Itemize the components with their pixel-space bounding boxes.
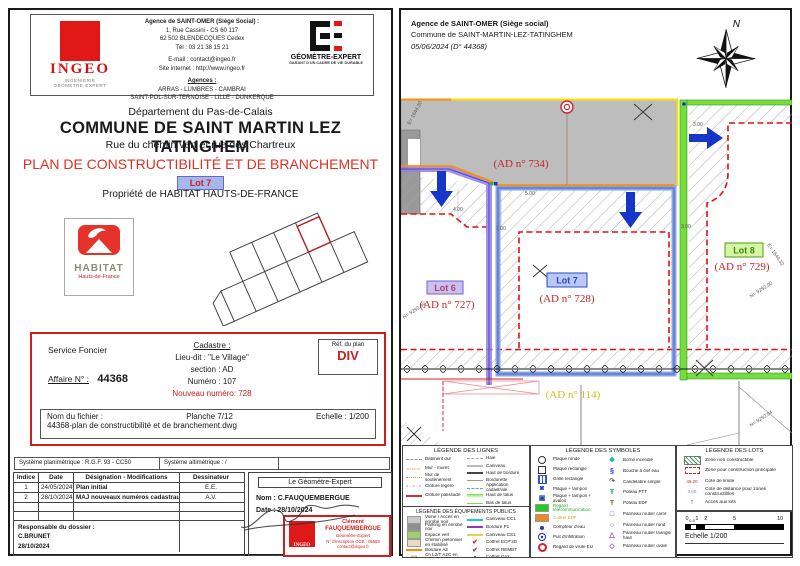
legend-item-label: Plaque + tampon xyxy=(553,487,603,492)
legend-item-label: Ch L2/T A2C en voirie xyxy=(425,553,466,558)
owner-line: Propriété de HABITAT HAUTS-DE-FRANCE xyxy=(10,189,391,200)
legend-item-label: Chemin piétonnier en stabilisé xyxy=(425,538,466,548)
geometre-stamp: INGEO Clément FAUQUEMBERGUE Géomètre-Exp… xyxy=(283,515,391,557)
legend-swatch xyxy=(533,533,551,542)
stamp-ingeo-icon: INGEO xyxy=(289,521,315,547)
legend-item-label: Caniveau xyxy=(486,464,527,469)
grid-coordinate-label: N= 9292.90 xyxy=(749,280,774,299)
legend-item-label: Plaque + tampon + avaloir xyxy=(553,494,603,503)
revision-row: 2 28/10/2024 MAJ nouveaux numéros cadast… xyxy=(14,493,244,503)
service-label: Service Foncier xyxy=(48,345,107,355)
legend-item: Ŧ Poteau EDF xyxy=(603,498,673,509)
file-name-label: Nom du fichier : xyxy=(47,412,103,421)
legend-item-label: Bordure A2 xyxy=(425,548,466,553)
lot6-parcel-label: (AD n° 727) xyxy=(419,299,474,311)
revision-row: 1 24/05/2024 Plan initial E.E. xyxy=(14,483,244,493)
cadastre-numero: Numéro : 107 xyxy=(142,376,282,388)
legend-swatch xyxy=(681,466,703,475)
legend-swatch xyxy=(533,455,551,464)
cadastre-section: section : AD xyxy=(142,364,282,376)
legend-item-label: Mur - muret xyxy=(425,466,466,471)
geometre-expert-logo-name: GÉOMÈTRE-EXPERT xyxy=(283,54,369,61)
legend-swatch xyxy=(533,504,551,513)
file-name-value: 44368-plan de constructibilité et de bra… xyxy=(47,421,369,430)
parcel-114-label: (AD n° 114) xyxy=(546,389,601,401)
legend-item-label: Haut de bordure xyxy=(486,471,527,476)
lot-badge: Lot 7 xyxy=(177,176,225,190)
legend-item: Compteur d'eau xyxy=(533,523,603,533)
lot8-badge-label: Lot 8 xyxy=(733,246,755,256)
legend-item-label: Parking en enrobé noir xyxy=(425,523,466,533)
geometre-expert-logo: GÉOMÈTRE-EXPERT GARANT D'UN CADRE DE VIE… xyxy=(283,21,369,65)
ingeo-logo-name: INGEO xyxy=(41,61,119,78)
legend-item: Mur de soutènement xyxy=(405,473,466,482)
agency-line: ARRAS - LUMBRES - CAMBRAI xyxy=(123,86,281,95)
legend-item: △ Panneau routier triangle haut xyxy=(603,531,673,542)
legend-swatch: □ xyxy=(603,510,621,519)
legend-swatch xyxy=(533,475,551,484)
revision-row-empty xyxy=(14,512,244,521)
coordinate-systems-row: Système planimétrique : R.G.F. 93 - CC50… xyxy=(14,457,390,470)
legend-swatch: △ xyxy=(603,531,621,540)
dimension-label: 5.00 xyxy=(525,191,535,197)
habitat-logo-sub: Hauts-de-France xyxy=(65,274,133,280)
legend-item-label: Poteau EDF xyxy=(623,501,673,506)
legend-swatch xyxy=(405,473,423,482)
lot7-parcel-label: (AD n° 728) xyxy=(539,293,594,305)
responsable-label: Responsable du dossier : xyxy=(18,523,175,532)
cadastral-cross xyxy=(533,265,547,277)
legend-item-label: Caniveau CC1 xyxy=(486,517,527,522)
plan-sheet-page: Agence de SAINT-OMER (Siège social) Comm… xyxy=(399,8,792,556)
grid-coordinate-label: N= 9292.94 xyxy=(749,409,774,428)
ingeo-logo: INGEO INGENIERIE GEOMETRE-EXPERT xyxy=(41,21,119,89)
geometre-expert-logo-icon xyxy=(306,21,346,51)
affaire-label: Affaire N° : xyxy=(48,374,89,384)
legend-item-label: Zone pour construction principale xyxy=(705,468,792,473)
legend-item: □ Panneau routier carré xyxy=(603,509,673,520)
legend-item-label: Poteau PTT xyxy=(623,490,673,495)
legend-item-label: Mur de soutènement xyxy=(425,473,466,483)
legend-item-label: Grille rectangle xyxy=(553,477,603,482)
utility-marker-green xyxy=(490,182,494,186)
legend-swatch: 3.00 xyxy=(681,487,703,496)
plan-header-commune: Commune de SAINT-MARTIN-LEZ-TATINGHEM xyxy=(411,29,573,40)
legend-item: ▣ Plaque + tampon + avaloir xyxy=(533,494,603,504)
cadastre-title: Cadastre : xyxy=(142,340,282,352)
legend-symbols-title: LÉGENDE DES SYMBOLES xyxy=(531,446,675,455)
legend-swatch xyxy=(533,465,551,474)
geometre-date: Date : 28/10/2024 xyxy=(256,507,312,514)
legend-swatch xyxy=(533,523,551,532)
legend-item: Regard de visite EU xyxy=(533,542,603,552)
legend-item: Zone non constructible xyxy=(677,455,792,466)
responsable-date: 28/10/2024 xyxy=(18,542,175,551)
plan-ref-value: DIV xyxy=(319,348,377,363)
legend-item-label: Panneau routier rond xyxy=(623,523,673,528)
commune-title: COMMUNE DE SAINT MARTIN LEZ TATINGHEM xyxy=(10,119,391,157)
dimension-label: 4.00 xyxy=(453,207,463,213)
scale-numbers: 0 0.5 1 2 5 10 xyxy=(685,516,784,524)
legend-item: ▭ Ch L2/T A2C en voirie xyxy=(405,554,466,558)
utility-marker-dot xyxy=(682,102,686,106)
plan-ref-box: Réf. du plan DIV xyxy=(318,339,378,375)
habitat-logo: HABITAT Hauts-de-France xyxy=(64,218,134,296)
scale-value: Echelle : 1/200 xyxy=(316,412,369,421)
legend-lines-box: LÉGENDE DES LIGNES Bâtiment dur ▭▭▭ Mur … xyxy=(402,445,530,507)
agency-line: Agences : xyxy=(123,77,281,86)
revision-table: Indice Date Désignation - Modifications … xyxy=(13,472,245,556)
stamp-last-name: FAUQUEMBERGUE xyxy=(317,526,389,534)
legend-item-label: Borne incendie xyxy=(623,458,673,463)
affaire-value: 44368 xyxy=(97,373,128,385)
site-plan: (AD n° 734) Lot 6 (AD n° 727) Lot 7 (AD … xyxy=(401,97,792,445)
legend-item-label: Panneau routier carré xyxy=(623,512,673,517)
legend-swatch: ▪ xyxy=(466,553,484,558)
legend-item-label: Coffret REMBT xyxy=(486,548,527,553)
legend-item: 3.00 Cote de distance pour zones constru… xyxy=(677,487,792,498)
legend-swatch xyxy=(533,543,551,552)
legend-item: ↑ Accès aux lots xyxy=(677,497,792,508)
letterhead: INGEO INGENIERIE GEOMETRE-EXPERT Agence … xyxy=(30,14,374,96)
legend-item: ↷ Candélabre simple xyxy=(603,477,673,488)
legend-item: ◙ Plaque + tampon xyxy=(533,484,603,494)
utility-marker-blue xyxy=(494,182,498,186)
legend-item: Coffret EDF xyxy=(533,513,603,523)
agency-line: Agence de SAINT-OMER (Siège Social) : xyxy=(123,18,281,27)
cadastre-block: Cadastre : Lieu-dit : "Le Village" secti… xyxy=(142,340,282,400)
dimension-label: 3.00 xyxy=(693,122,703,128)
legend-item: Plaque rectangle xyxy=(533,465,603,475)
legend-item: ○ Panneau routier rond xyxy=(603,520,673,531)
legend-item: ◇ Panneau routier ovale xyxy=(603,541,673,552)
legend-item-label: Puit d'infiltration xyxy=(553,535,603,540)
legend-item-label: Panneau routier ovale xyxy=(623,544,673,549)
legend-item: ▭▭▭ Mur - muret xyxy=(405,464,466,473)
legend-swatch: ◙ xyxy=(533,484,551,493)
parcel-114-details xyxy=(443,381,792,445)
dimension-label: 3.00 xyxy=(681,224,691,230)
compass-north-label: N xyxy=(733,19,741,30)
legend-item: Bâtiment dur xyxy=(405,455,466,464)
legend-item-label: Coffret ECP'2D xyxy=(486,540,527,545)
legend-swatch: 45.20 xyxy=(681,477,703,486)
legend-item: ×-×-× Clôture légère xyxy=(405,482,466,491)
legend-item-label: Cote de limite xyxy=(705,479,792,484)
legend-swatch: § xyxy=(603,467,621,476)
scale-label: Echelle 1/200 xyxy=(685,533,784,540)
legend-item-label: Bouche à clef eau xyxy=(623,469,673,474)
agency-line: SAINT-POL-SUR-TERNOISE - LILLE - DUNKERQ… xyxy=(123,94,281,103)
legend-swatch xyxy=(533,513,551,522)
agency-line: Tél : 03 21 38 15 21 xyxy=(123,44,281,53)
fence-x-marks xyxy=(401,365,792,373)
legend-item-label: Coffret Gaz xyxy=(486,555,527,558)
legend-item-label: Candélabre simple xyxy=(623,480,673,485)
cadastre-lieu-dit: Lieu-dit : "Le Village" xyxy=(142,352,282,364)
plan-title: PLAN DE CONSTRUCTIBILITÉ ET DE BRANCHEME… xyxy=(10,156,391,172)
legend-item: Clôture palissade xyxy=(405,491,466,500)
legend-item-label: Zone non constructible xyxy=(705,458,792,463)
legend-item-label: Panneau routier triangle haut xyxy=(623,531,673,540)
legend-item-label: Clôture légère xyxy=(425,484,466,489)
agency-line: 62 502 BLENDECQUES Cedex xyxy=(123,35,281,44)
legend-item-label: Bas de talus xyxy=(486,501,527,506)
department-title: Département du Pas-de-Calais xyxy=(10,106,391,118)
geometre-expert-logo-tagline: GARANT D'UN CADRE DE VIE DURABLE xyxy=(283,61,369,65)
legend-item-label: Regard télécommunication xyxy=(553,504,603,513)
agency-website: Site internet : http://www.ingeo.fr xyxy=(123,65,281,74)
legend-item: § Bouche à clef eau xyxy=(603,466,673,477)
file-info-box: Nom du fichier : Planche 7/12 Echelle : … xyxy=(40,409,376,439)
legend-item-label: Coffret EDF xyxy=(553,516,603,521)
legend-item: Regard télécommunication xyxy=(533,503,603,513)
legend-swatch: Ŧ xyxy=(603,488,621,497)
grid-coordinate-label: N= 9292.99 xyxy=(402,301,427,320)
legend-strip: LÉGENDE DES LIGNES Bâtiment dur ▭▭▭ Mur … xyxy=(402,445,793,558)
compass-rose: N xyxy=(690,18,762,90)
planimetric-system: Système planimétrique : R.G.F. 93 - CC50 xyxy=(15,458,160,469)
revision-header-row: Indice Date Désignation - Modifications … xyxy=(14,473,244,483)
revision-row-empty xyxy=(14,503,244,512)
legend-symbols-box: LÉGENDE DES SYMBOLES Plaque ronde Plaque… xyxy=(530,445,676,558)
legend-item: Plaque ronde xyxy=(533,455,603,465)
legend-item: ▪ Coffret Gaz xyxy=(466,554,527,558)
legend-item: Ŧ Poteau PTT xyxy=(603,487,673,498)
cadastre-nouveau-numero: Nouveau numéro: 728 xyxy=(142,388,282,400)
legend-swatch: ❖ xyxy=(603,456,621,465)
legend-swatch: ▣ xyxy=(533,494,551,503)
stamp-first-name: Clément xyxy=(317,519,389,526)
lot6-badge-label: Lot 6 xyxy=(434,283,456,293)
legend-swatch xyxy=(405,455,423,464)
ingeo-logo-sub2: GEOMETRE-EXPERT xyxy=(41,83,119,89)
legend-swatch xyxy=(681,456,703,465)
lot7-badge-label: Lot 7 xyxy=(556,276,578,286)
legend-item-label: Compteur d'eau xyxy=(553,525,603,530)
legend-item-label: Cote de distance pour zones constructibl… xyxy=(705,487,792,497)
legend-swatch: Ŧ xyxy=(603,499,621,508)
agency-email: E-mail : contact@ingeo.fr xyxy=(123,56,281,65)
legend-swatch: ↷ xyxy=(603,477,621,486)
lot8-parcel-label: (AD n° 729) xyxy=(714,261,769,273)
legend-item-label: Haie xyxy=(486,456,527,461)
legend-item: Grille rectangle xyxy=(533,474,603,484)
geometre-name: Nom : C.FAUQUEMBERGUE xyxy=(256,495,350,502)
affaire-number: Affaire N° : 44368 xyxy=(48,373,128,385)
legend-swatch xyxy=(405,491,423,500)
plan-header-agency: Agence de SAINT-OMER (Siège social) xyxy=(411,18,573,29)
location-sketch xyxy=(195,208,375,326)
agency-address-block: Agence de SAINT-OMER (Siège Social) : 1,… xyxy=(123,18,281,103)
responsable-block: Responsable du dossier : C.BRUNET 28/10/… xyxy=(14,521,244,552)
legend-item-label: Application cadastrale xyxy=(486,483,527,493)
agency-line: 1, Rue Cassini - CS 60 117 xyxy=(123,27,281,36)
legend-item-label: Plaque rectangle xyxy=(553,467,603,472)
legend-swatch: ×-×-× xyxy=(405,482,423,491)
scale-bar xyxy=(685,524,784,530)
legend-lots-title: LÉGENDE DES LOTS xyxy=(677,446,792,455)
legend-item: 45.20 Cote de limite xyxy=(677,476,792,487)
scale-underline xyxy=(685,543,784,544)
legend-equipment-box: LÉGENDE DES ÉQUIPEMENTS PUBLICS Voirie /… xyxy=(402,506,530,558)
legend-swatch: ○ xyxy=(603,521,621,530)
legend-item-label: Bâtiment dur xyxy=(425,457,466,462)
geometre-signature-box: Le Géomètre-Expert Nom : C.FAUQUEMBERGUE… xyxy=(248,472,392,556)
legend-swatch: ◇ xyxy=(603,542,621,551)
legend-swatch: ▭ xyxy=(405,553,423,558)
habitat-logo-icon xyxy=(76,223,122,257)
geometre-title: Le Géomètre-Expert xyxy=(258,477,382,488)
altimetric-system: Système altimétrique : / xyxy=(160,458,279,469)
scale-bar-box: 0 0.5 1 2 5 10 Echelle 1/200 xyxy=(676,511,793,558)
legend-item: Zone pour construction principale xyxy=(677,466,792,477)
responsable-name: C.BRUNET xyxy=(18,532,175,541)
title-sheet-page: INGEO INGENIERIE GEOMETRE-EXPERT Agence … xyxy=(8,8,393,556)
legend-item-label: Caniveau CS1 xyxy=(486,533,527,538)
legend-swatch: ↑ xyxy=(681,498,703,507)
legend-item-label: Haut de talus xyxy=(486,493,527,498)
legend-lots-box: LÉGENDE DES LOTS Zone non constructible … xyxy=(676,445,793,511)
legend-item: Puit d'infiltration xyxy=(533,533,603,543)
legend-item: ❖ Borne incendie xyxy=(603,455,673,466)
dimension-label: 3.00 xyxy=(496,226,506,232)
habitat-logo-name: HABITAT xyxy=(65,263,133,274)
plan-header-date-dossier: 05/06/2024 (D° 44368) xyxy=(411,41,573,52)
legend-item-label: Espace vert xyxy=(425,533,466,538)
planche-number: Planche 7/12 xyxy=(186,412,233,421)
road-parcel-label: (AD n° 734) xyxy=(493,158,548,170)
legend-item-label: Clôture palissade xyxy=(425,493,466,498)
plan-sheet-header: Agence de SAINT-OMER (Siège social) Comm… xyxy=(411,18,573,52)
folio-info-box: Service Foncier Affaire N° : 44368 Cadas… xyxy=(30,332,386,446)
legend-item-label: Bordure P1 xyxy=(486,525,527,530)
legend-swatch: ▭▭▭ xyxy=(405,464,423,473)
stamp-email: contact@ingeo.fr xyxy=(317,544,389,549)
legend-item-label: Accès aux lots xyxy=(705,500,792,505)
street-subtitle: Rue du chemin vert et rue des Chartreux xyxy=(10,139,391,151)
ingeo-logo-icon xyxy=(60,21,100,61)
legend-item-label: Regard de visite EU xyxy=(553,545,603,550)
legend-item-label: Plaque ronde xyxy=(553,457,603,462)
